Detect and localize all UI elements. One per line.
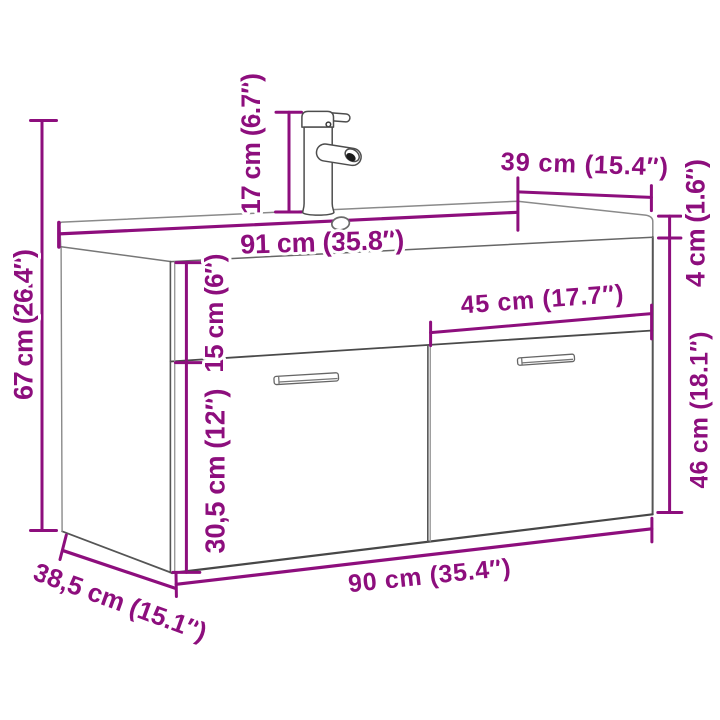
svg-text:46 cm (18.1″): 46 cm (18.1″) bbox=[686, 332, 714, 489]
svg-text:15 cm (6″): 15 cm (6″) bbox=[199, 254, 229, 373]
svg-text:4 cm (1.6″): 4 cm (1.6″) bbox=[681, 159, 711, 287]
svg-text:39 cm (15.4″): 39 cm (15.4″) bbox=[500, 148, 668, 182]
svg-text:91 cm (35.8″): 91 cm (35.8″) bbox=[240, 225, 405, 260]
svg-text:67 cm (26.4″): 67 cm (26.4″) bbox=[8, 249, 38, 400]
svg-text:30,5 cm (12″): 30,5 cm (12″) bbox=[200, 389, 231, 554]
svg-text:17 cm (6.7″): 17 cm (6.7″) bbox=[236, 73, 266, 214]
